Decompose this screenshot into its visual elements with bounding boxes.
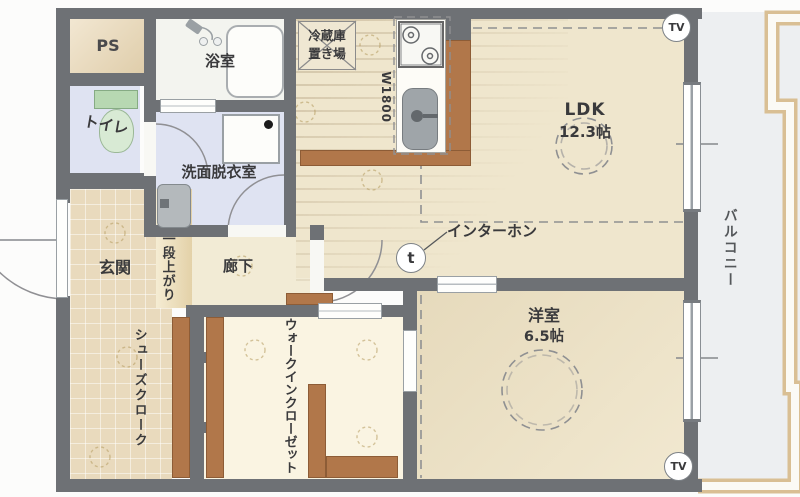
fridge-space-label: 冷蔵庫 置き場 <box>298 27 356 63</box>
corridor-label: 廊下 <box>192 257 284 275</box>
floor-plan: TV TV t PS 浴室 トイレ 洗面脱衣室 玄関 シューズクローク 一段上が… <box>0 0 800 497</box>
western-room-balcony-window <box>683 300 701 422</box>
fridge-space-line2: 置き場 <box>298 45 356 63</box>
balcony-label: バルコニー <box>721 208 738 323</box>
intercom-mark: t <box>396 243 426 273</box>
intercom-symbol: t <box>407 249 414 267</box>
washroom-label: 洗面脱衣室 <box>148 163 290 181</box>
ldk-balcony-window <box>683 82 701 212</box>
tv-mark-label: TV <box>670 460 686 473</box>
tv-mark-label: TV <box>668 21 684 34</box>
tv-outlet-mark-top: TV <box>662 13 691 42</box>
step-up-label: 一段上がり <box>159 232 175 332</box>
bathroom-label: 浴室 <box>156 52 284 70</box>
ldk-size-label: 12.3帖 <box>540 123 630 141</box>
fridge-space-line1: 冷蔵庫 <box>298 27 356 45</box>
kitchen-width-label: W1800 <box>379 67 393 127</box>
entrance-label: 玄関 <box>70 258 160 277</box>
ps-label: PS <box>70 36 146 55</box>
tv-outlet-mark-bottom: TV <box>664 452 693 481</box>
western-room-label: 洋室 <box>502 306 586 325</box>
walk-in-closet-label: ウォークインクローゼット <box>281 318 297 478</box>
intercom-label: インターホン <box>447 222 557 240</box>
ldk-label: LDK <box>540 100 630 120</box>
shoe-closet-label: シューズクローク <box>131 328 147 478</box>
western-room-size-label: 6.5帖 <box>502 329 586 346</box>
